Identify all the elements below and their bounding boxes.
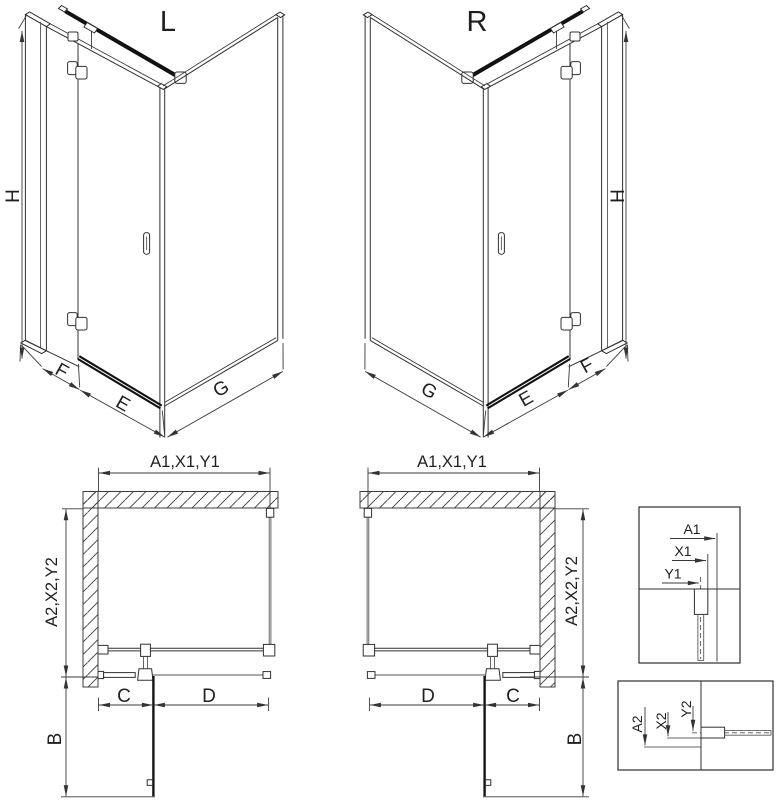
detail-label-a1: A1: [683, 521, 700, 537]
bar-wall-bracket: [98, 645, 108, 654]
detail-label-x2: X2: [653, 712, 669, 729]
detail-label-y2: Y2: [678, 700, 694, 717]
plan-view-linework-right: [363, 468, 540, 797]
shower-enclosure-dimension-drawing: L H F E G R H F E G A1,X1,Y1 A2,X2,Y2 B …: [0, 0, 784, 800]
fixed-glass-panel: [104, 673, 136, 678]
dimension-label-c-right: C: [506, 686, 520, 707]
bar-end-cap: [59, 6, 68, 13]
detail-label-a2: A2: [629, 715, 645, 732]
glass-profile-section: [694, 589, 707, 614]
plan-view-linework: [98, 468, 275, 797]
wall-top-right-plan: [360, 492, 555, 509]
view-title-left: L: [160, 6, 176, 38]
dimension-label-g-left: G: [210, 376, 233, 402]
dimension-label-b-left: B: [45, 733, 66, 746]
corner-bracket: [263, 672, 271, 679]
dimension-label-width-right: A1,X1,Y1: [417, 453, 487, 471]
wall-side-left-plan: [83, 492, 98, 688]
glass-profile-section: [701, 727, 725, 738]
dimension-label-depth-right: A2,X2,Y2: [563, 556, 581, 626]
dimension-label-g-right: G: [417, 378, 440, 404]
door-hinge-block: [138, 669, 153, 680]
door-handle: [147, 780, 153, 786]
dimension-label-width-left: A1,X1,Y1: [150, 453, 220, 471]
dimension-label-c-left: C: [117, 686, 131, 707]
dimension-label-e-right: E: [516, 387, 537, 412]
door-hinge-lower: [76, 317, 87, 330]
dimension-label-f-left: F: [51, 359, 71, 383]
dimension-label-d-left: D: [202, 686, 216, 707]
wall-profile: [98, 671, 104, 678]
bar-clamp: [84, 23, 98, 34]
wall-top-left-plan: [83, 492, 278, 509]
wall-profile: [266, 508, 273, 517]
detail-label-y1: Y1: [664, 566, 681, 582]
detail-label-x1: X1: [674, 543, 691, 559]
dimension-label-h-left: H: [3, 189, 24, 203]
drawing-svg: L H F E G R H F E G A1,X1,Y1 A2,X2,Y2 B …: [0, 0, 784, 800]
dimension-label-e-left: E: [112, 392, 133, 417]
bar-tee-connector: [141, 644, 151, 656]
corner-post: [263, 644, 274, 656]
dimension-label-h-right: H: [608, 189, 629, 203]
door-hinge-upper: [76, 66, 87, 79]
dimension-label-d-right: D: [421, 686, 435, 707]
dimension-label-b-right: B: [565, 733, 586, 746]
dimension-label-depth-left: A2,X2,Y2: [43, 557, 61, 627]
top-pivot-hinge: [68, 32, 78, 41]
view-title-right: R: [467, 6, 488, 38]
wall-side-right-plan: [540, 492, 555, 688]
